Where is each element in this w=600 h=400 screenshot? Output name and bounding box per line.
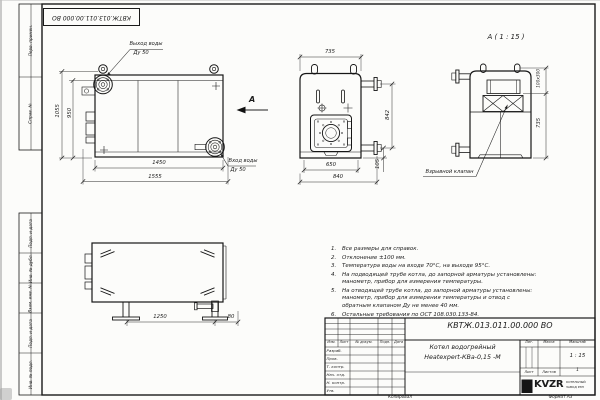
front-view-dimensions [59,69,230,184]
logo-text: KVZR [534,379,566,390]
margin-cell-inv-dubl: Инв. № дубл. [19,253,42,283]
scan-edge-top [0,0,600,1]
note-item: 2.Отклонение ±100 мм. [331,255,567,263]
role-row-nkontr: Н. контр. [327,381,346,385]
lit-label: Лит. [520,341,538,345]
dim-840: 840 [318,175,358,181]
margin-label: Взам. инв. № [28,284,33,312]
dim-735-top: 735 [310,50,350,56]
outlet-label: Выход воды [126,42,166,48]
scale-label: Масштаб [560,341,595,345]
dim-1450: 1450 [139,161,179,167]
end-view-drawing [300,65,381,159]
dim-1055: 1055 [56,98,62,122]
scan-smudge [0,388,12,400]
note-text: На подводящей трубе котла, до запорной а… [342,272,540,287]
mass-label: Масса [538,341,560,345]
margin-label: Подп. и дата [28,219,33,248]
note-item: 6.Остальные требования по ОСТ 108.030.13… [331,312,567,320]
drawing-sheet: КВТЖ.013.011.00.000 ВО Перв. примен. Спр… [0,0,600,400]
note-item: 4.На подводящей трубе котла, до запорной… [331,272,567,287]
view-direction-label: А [249,96,255,105]
scan-edge-left [0,0,2,400]
margin-cell-podp-data-1: Подп. и дата [19,213,42,253]
note-text: Отклонение ±100 мм. [342,255,540,263]
technical-notes: 1.Все размеры для справок. 2.Отклонение … [331,246,567,320]
logo-sub-line2: ЗАВОД РЭП [566,386,584,389]
header-cell-data: Дата [392,341,405,345]
role-row-nachotd: Нач. отд. [327,373,346,377]
logo-sub-line1: КОТЕЛЬНЫЙ [566,381,586,384]
product-name-line1: Котел водогрейный [406,345,519,352]
note-number: 6. [331,312,342,320]
role-row-tkontr: Т. контр. [327,365,345,369]
plan-view-drawing [85,243,228,320]
margin-cell-inv-podl: Инв. № подл. [19,353,42,395]
margin-label: Перв. примен. [28,25,33,56]
scale-value: 1 : 15 [560,353,595,359]
header-cell-list: Лист [338,341,350,345]
role-row-utv: Утв. [327,389,335,393]
doc-number-stamp: КВТЖ.013.011.00.000 ВО [43,8,140,26]
sheet-label: Лист [520,370,538,374]
note-text: Остальные требования по ОСТ 108.030.133-… [342,312,540,320]
format-label: Формат А3 [533,395,588,400]
margin-label: Инв. № дубл. [28,254,33,283]
header-cell-izm: Изм. [325,341,338,345]
note-text: Все размеры для справок. [342,246,540,254]
title-block-doc-number: КВТЖ.013.011.00.000 ВО [406,322,594,331]
note-item: 3.Температура воды на входе 70°С, на вых… [331,263,567,271]
note-number: 2. [331,255,342,263]
sheets-label: Листов [538,370,560,374]
logo-mark-icon [522,380,533,394]
dim-842: 842 [386,102,392,126]
explosion-valve-label: Взрывной клапан [423,170,476,176]
dim-1555: 1555 [135,175,175,181]
margin-cell-sprav-no: Справ. № [19,77,42,150]
margin-label: Подп. и дата [28,319,33,348]
margin-cell-vzam-inv: Взам. инв. № [19,283,42,313]
header-cell-podp: Подп. [378,341,392,345]
margin-label: Инв. № подл. [28,360,33,389]
outlet-dn-label: Ду 50 [126,51,156,57]
note-number: 1. [331,246,342,254]
detail-view-title: А ( 1 : 15 ) [475,34,537,42]
detail-view-dimensions [520,66,549,160]
note-text: На отводящей трубе котла, до запорной ар… [342,288,540,311]
inlet-dn-label: Ду 50 [226,168,250,174]
role-row-prov: Пров. [327,357,338,361]
note-number: 4. [331,272,342,287]
product-name-line2: Heatexpert-КВа-0,15 -М [406,355,519,362]
dim-950: 950 [68,101,74,125]
note-item: 5.На отводящей трубе котла, до запорной … [331,288,567,311]
copied-label: Копировал [375,395,425,400]
dim-735-detail: 735 [537,111,543,135]
note-text: Температура воды на входе 70°С, на выход… [342,263,540,271]
dim-105: 105 [376,152,382,176]
dim-80: 80 [222,315,240,321]
margin-cell-perv-primen: Перв. примен. [19,4,42,77]
header-cell-docum: № докум. [350,341,378,345]
margin-cell-podp-data-2: Подп. и дата [19,313,42,353]
inlet-label: Вход воды [226,159,260,165]
note-number: 3. [331,263,342,271]
margin-label: Справ. № [28,103,33,123]
dim-duct-100x300: 100х300 [538,63,543,93]
doc-number-stamp-text: КВТЖ.013.011.00.000 ВО [52,14,131,21]
drawing-linework [0,0,600,400]
frame-borders [19,4,595,395]
note-number: 5. [331,288,342,311]
sheets-value: 1 [560,369,595,374]
dim-650: 650 [311,163,351,169]
role-row-razrab: Разраб. [327,349,342,353]
detail-view-drawing [452,64,531,158]
front-view-drawing [82,65,224,157]
dim-1250: 1250 [140,315,180,321]
note-item: 1.Все размеры для справок. [331,246,567,254]
